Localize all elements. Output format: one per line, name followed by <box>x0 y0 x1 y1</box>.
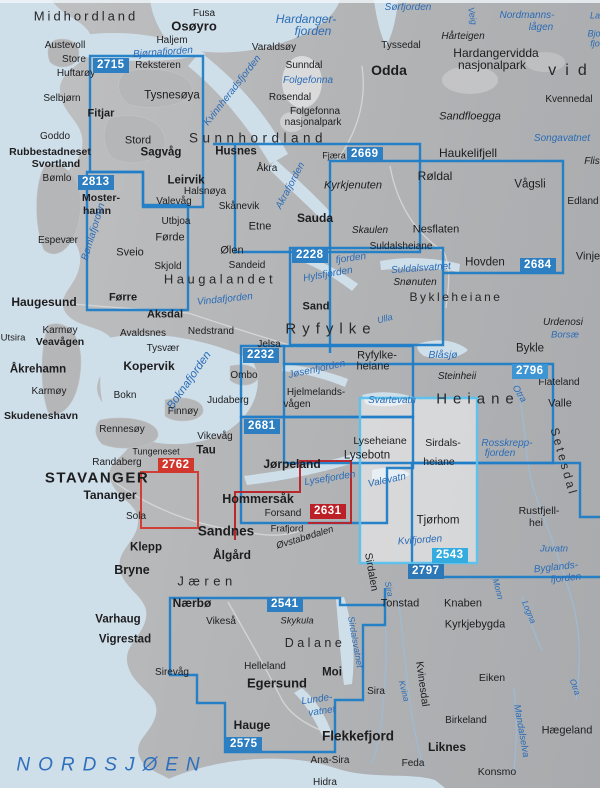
place-label-bors-: Borsæ <box>551 330 579 340</box>
place-label-sira: Sira <box>383 581 394 598</box>
place-label-juvatn: Juvatn <box>540 544 568 554</box>
place-label-huftar-y: Huftarøy <box>57 69 95 79</box>
place-label-bykleheiane: Bykleheiane <box>410 291 503 303</box>
place-label-nordsj-en: NORDSJØEN <box>16 756 207 775</box>
place-label-j-senfjorden: Jøsenfjorden <box>288 359 347 381</box>
place-label-utsira: Utsira <box>1 333 26 343</box>
place-label-kvinnheradsfjorden: Kvinnheradsfjorden <box>203 54 264 128</box>
place-label-bryne: Bryne <box>114 564 149 577</box>
place-label-valevatn: Valevatn <box>367 472 407 490</box>
place-label-varhaug: Varhaug <box>95 614 140 626</box>
place-label-lysebotn: Lysebotn <box>344 450 390 462</box>
place-label-kvina: Kvina <box>397 680 410 703</box>
place-label-h-rteigen: Hårteigen <box>441 32 484 42</box>
place-label-sirev-g: Sirevåg <box>155 668 189 678</box>
place-label--len: Ølen <box>220 246 243 257</box>
sheet-number-2715: 2715 <box>93 58 129 73</box>
place-label-tyssedal: Tyssedal <box>381 41 420 51</box>
place-label-la: La <box>590 12 600 21</box>
place-label-v-gen: vågen <box>283 400 310 410</box>
place-label-skykula: Skykula <box>280 616 313 626</box>
place-label-judaberg: Judaberg <box>207 396 249 406</box>
place-label-suldalsvatnet: Suldalsvatnet <box>391 262 452 276</box>
place-label-mandalselva: Mandalselva <box>512 704 531 758</box>
place-label-etne: Etne <box>249 222 272 233</box>
place-label-aksdal: Aksdal <box>147 310 183 321</box>
sheet-number-2796: 2796 <box>512 364 548 379</box>
place-label-sirdalen: Sirdalen <box>362 552 379 592</box>
place-label-flateland: Flateland <box>538 378 579 388</box>
sheet-number-2813: 2813 <box>78 175 114 190</box>
place-label-lyseheiane: Lyseheiane <box>353 436 406 447</box>
place-label-birkeland: Birkeland <box>445 716 487 726</box>
place-label-sirdalsvatnet: Sirdalsvatnet <box>346 616 364 669</box>
sheet-number-2681: 2681 <box>244 419 280 434</box>
place-label-hjelmelands-: Hjelmelands- <box>287 388 345 398</box>
place-label-hauge: Hauge <box>234 719 271 731</box>
place-label-klepp: Klepp <box>130 542 162 554</box>
place-label-akrafjorden: Akrafjorden <box>275 161 308 211</box>
place-label-tysnes-ya: Tysnesøya <box>144 90 200 102</box>
place-label-sira: Sira <box>367 687 385 697</box>
place-label-ana-sira: Ana-Sira <box>311 756 350 766</box>
place-label-sk-nevik: Skånevik <box>219 202 260 212</box>
place-label-austevoll: Austevoll <box>45 41 86 51</box>
place-label-sn-nuten: Snønuten <box>393 278 436 288</box>
place-label-kvinesdal: Kvinesdal <box>414 661 431 708</box>
place-label-eiken: Eiken <box>479 673 505 684</box>
place-label-tonstad: Tonstad <box>381 599 420 610</box>
place-label-logna: Logna <box>521 599 538 624</box>
sheet-number-2797: 2797 <box>408 564 444 579</box>
place-label-frafjord: Frafjord <box>271 524 304 534</box>
place-label-otra: Otra <box>568 678 582 696</box>
place-label-kopervik: Kopervik <box>123 360 174 372</box>
place-label-fjorden: fjorden <box>335 252 367 266</box>
sheet-number-2631: 2631 <box>310 504 346 519</box>
place-label-nasjonalpark: nasjonalpark <box>458 59 526 71</box>
place-label-svortland: Svortland <box>32 159 80 170</box>
place-label-sola: Sola <box>126 512 146 522</box>
place-label-ombo: Ombo <box>230 371 257 381</box>
place-label-rustfjell-: Rustfjell- <box>519 506 560 517</box>
place-label-feda: Feda <box>402 759 425 769</box>
place-label-valle: Valle <box>548 399 572 410</box>
place-label-kvifjorden: Kvifjorden <box>397 534 442 547</box>
place-label-stord: Stord <box>125 136 151 147</box>
sheet-number-2228: 2228 <box>292 248 328 263</box>
place-label-kyrkjenuten: Kyrkjenuten <box>324 181 382 192</box>
place-label-r-ldal: Røldal <box>418 170 453 182</box>
place-label-fj-ra: Fjæra <box>322 152 346 161</box>
sheet-number-2575: 2575 <box>226 737 262 752</box>
place-label-flekkefjord: Flekkefjord <box>322 729 394 743</box>
place-label-karm-y: Karmøy <box>32 387 67 397</box>
place-label-urdenosi: Urdenosi <box>543 318 583 328</box>
place-label-stavanger: STAVANGER <box>45 471 149 486</box>
place-label-konsmo: Konsmo <box>478 767 517 778</box>
place-label-rennes-y: Rennesøy <box>99 425 145 435</box>
place-label-hovden: Hovden <box>465 257 505 269</box>
place-label-sauda: Sauda <box>297 212 333 224</box>
place-label-reksteren: Reksteren <box>135 61 181 71</box>
place-label-b-mlo: Bømlo <box>43 174 72 184</box>
sheet-number-2541: 2541 <box>267 597 303 612</box>
place-label-sirdals-: Sirdals- <box>425 438 461 449</box>
place-label-kyrkjebygda: Kyrkjebygda <box>445 620 506 631</box>
place-label-moi: Moi <box>322 667 342 679</box>
place-label-egersund: Egersund <box>247 677 307 690</box>
place-label--kra: Åkra <box>257 164 278 174</box>
place-label-vatnet: vatnet <box>308 705 336 719</box>
place-label-selbj-rn: Selbjørn <box>43 94 80 104</box>
place-label-skaulen: Skaulen <box>352 226 388 236</box>
sheet-number-2543: 2543 <box>432 548 468 563</box>
place-label-avaldsnes: Avaldsnes <box>120 329 166 339</box>
place-label-nesflaten: Nesflaten <box>413 225 459 236</box>
place-label-hylsfjorden: Hylsfjorden <box>302 266 353 285</box>
place-label-vigrestad: Vigrestad <box>99 634 151 646</box>
place-label-tananger: Tananger <box>83 489 136 501</box>
sheet-number-2684: 2684 <box>520 258 556 273</box>
map-canvas: MidhordlandFusaOsøyroHardanger-fjordenSø… <box>0 0 600 788</box>
place-label-fusa: Fusa <box>193 9 215 19</box>
place-label-helleland: Helleland <box>244 662 286 672</box>
place-label-utbjoa: Utbjoa <box>162 217 191 227</box>
place-label-knaben: Knaben <box>444 599 482 610</box>
place-label-skjold: Skjold <box>154 262 181 272</box>
place-label-tau: Tau <box>196 445 216 457</box>
place-label-f-rre: Førre <box>109 293 137 304</box>
place-label-sandnes: Sandnes <box>198 524 254 538</box>
paper-edge <box>0 0 600 3</box>
place-label-finn-y: Finnøy <box>168 407 199 417</box>
place-label-hei: hei <box>529 518 543 529</box>
place-label-dalane: Dalane <box>285 637 346 650</box>
place-label-heiane: heiane <box>423 457 455 468</box>
place-label-sagv-g: Sagvåg <box>141 147 182 159</box>
place-label-f-rde: Førde <box>155 233 184 244</box>
place-label-valev-g: Valevåg <box>156 197 191 207</box>
place-label-j-ren: Jæren <box>177 575 236 588</box>
place-label-veig: Veig <box>466 7 478 26</box>
place-label-sunnhordland: Sunnhordland <box>189 131 327 145</box>
place-label-flis: Flis <box>584 157 600 167</box>
place-label-liknes: Liknes <box>428 741 466 753</box>
place-label-sveio: Sveio <box>116 248 144 259</box>
place-label-odda: Odda <box>371 63 407 77</box>
place-label--krehamn: Åkrehamn <box>10 364 66 376</box>
place-label-heiane: Heiane <box>436 392 520 407</box>
place-label-forsand: Forsand <box>265 509 302 519</box>
place-label-j-rpeland: Jørpeland <box>263 458 320 470</box>
place-label-tysv-r: Tysvær <box>147 344 180 354</box>
place-label-monn: Monn <box>491 578 505 601</box>
place-label-ryfylke: Ryfylke <box>285 322 376 337</box>
place-label-l-gen: lågen <box>529 23 553 33</box>
place-label-vindafjorden: Vindafjorden <box>197 292 254 308</box>
place-label-fjo: fjo <box>590 40 600 49</box>
sheet-number-2762: 2762 <box>158 458 194 473</box>
place-label-vinje: Vinje <box>576 252 600 263</box>
place-label-varalds-y: Varaldsøy <box>252 43 296 53</box>
place-label-bjo: Bjo <box>587 30 600 39</box>
place-label-lysefjorden: Lysefjorden <box>304 470 356 488</box>
place-label-husnes: Husnes <box>215 146 257 158</box>
place-label-moster-: Moster- <box>82 193 120 204</box>
place-label-vikev-g: Vikevåg <box>197 432 232 442</box>
place-label-ulla: Ulla <box>376 313 393 326</box>
place-label-fjorden: fjorden <box>550 572 581 585</box>
place-label-songavatnet: Songavatnet <box>534 134 590 144</box>
place-label-sandfloegga: Sandfloegga <box>439 112 501 123</box>
place-label-skudeneshavn: Skudeneshavn <box>4 411 78 422</box>
map-labels-layer: MidhordlandFusaOsøyroHardanger-fjordenSø… <box>0 0 600 788</box>
place-label-hidra: Hidra <box>313 778 337 788</box>
place-label-vikes-: Vikeså <box>206 617 236 627</box>
place-label-heiane: heiane <box>356 362 389 373</box>
place-label-tj-rhom: Tjørhom <box>417 515 460 527</box>
place-label-bokn: Bokn <box>114 391 137 401</box>
place-label-bl-sj-: Blåsjø <box>428 350 457 361</box>
place-label-vid: vid <box>548 63 595 79</box>
place-label-store: Store <box>62 55 86 65</box>
place-label-bj-rnafjorden: Bjørnafjorden <box>133 46 194 60</box>
place-label-steinheii: Steinheii <box>438 372 476 382</box>
place-label-s-rfjorden: Sørfjorden <box>385 3 432 13</box>
place-label-n-rb-: Nærbø <box>173 597 212 609</box>
place-label-svartevatn: Svartevatn <box>368 396 416 406</box>
place-label-randaberg: Randaberg <box>92 458 141 468</box>
place-label-v-gsli: Vågsli <box>514 179 545 191</box>
place-label-fjorden: fjorden <box>295 25 332 37</box>
place-label-fjorden: fjorden <box>485 449 516 459</box>
place-label-sandeid: Sandeid <box>229 261 266 271</box>
place-label-rubbestadneset: Rubbestadneset <box>9 147 91 158</box>
place-label-espev-r: Espevær <box>38 236 78 246</box>
place-label-haugesund: Haugesund <box>11 296 76 308</box>
sheet-number-2669: 2669 <box>347 147 383 162</box>
place-label-bykle: Bykle <box>516 343 544 355</box>
place-label-nedstrand: Nedstrand <box>188 327 234 337</box>
sheet-number-2232: 2232 <box>243 348 279 363</box>
place-label-sunndal: Sunndal <box>286 61 323 71</box>
place-label-tungeneset: Tungeneset <box>132 448 179 457</box>
place-label-karm-y: Karmøy <box>43 326 78 336</box>
place-label-goddo: Goddo <box>40 132 70 142</box>
place-label-haugalandet: Haugalandet <box>164 273 276 286</box>
place-label-kvennedal: Kvennedal <box>545 95 592 105</box>
place-label-folgefonna: Folgefonna <box>283 76 333 86</box>
place-label-fitjar: Fitjar <box>88 109 115 120</box>
place-label--lg-rd: Ålgård <box>213 549 251 561</box>
place-label-nordmanns-: Nordmanns- <box>499 11 554 21</box>
place-label-os-yro: Osøyro <box>171 20 217 33</box>
place-label-edland: Edland <box>567 197 598 207</box>
place-label-rosendal: Rosendal <box>269 93 311 103</box>
place-label-suldalsheiane: Suldalsheiane <box>370 242 433 252</box>
place-label-folgefonna: Folgefonna <box>290 107 340 117</box>
place-label-h-geland: Hægeland <box>542 726 593 737</box>
place-label-veav-gen: Veavågen <box>36 337 84 348</box>
place-label-nasjonalpark: nasjonalpark <box>285 118 342 128</box>
place-label-setesdal: Setesdal <box>548 426 579 497</box>
place-label-sand: Sand <box>303 302 330 313</box>
place-label-haljem: Haljem <box>156 36 187 46</box>
place-label-midhordland: Midhordland <box>34 10 139 23</box>
place-label-haukelifjell: Haukelifjell <box>439 147 497 159</box>
place-label-hommers-k: Hommersåk <box>222 493 294 506</box>
